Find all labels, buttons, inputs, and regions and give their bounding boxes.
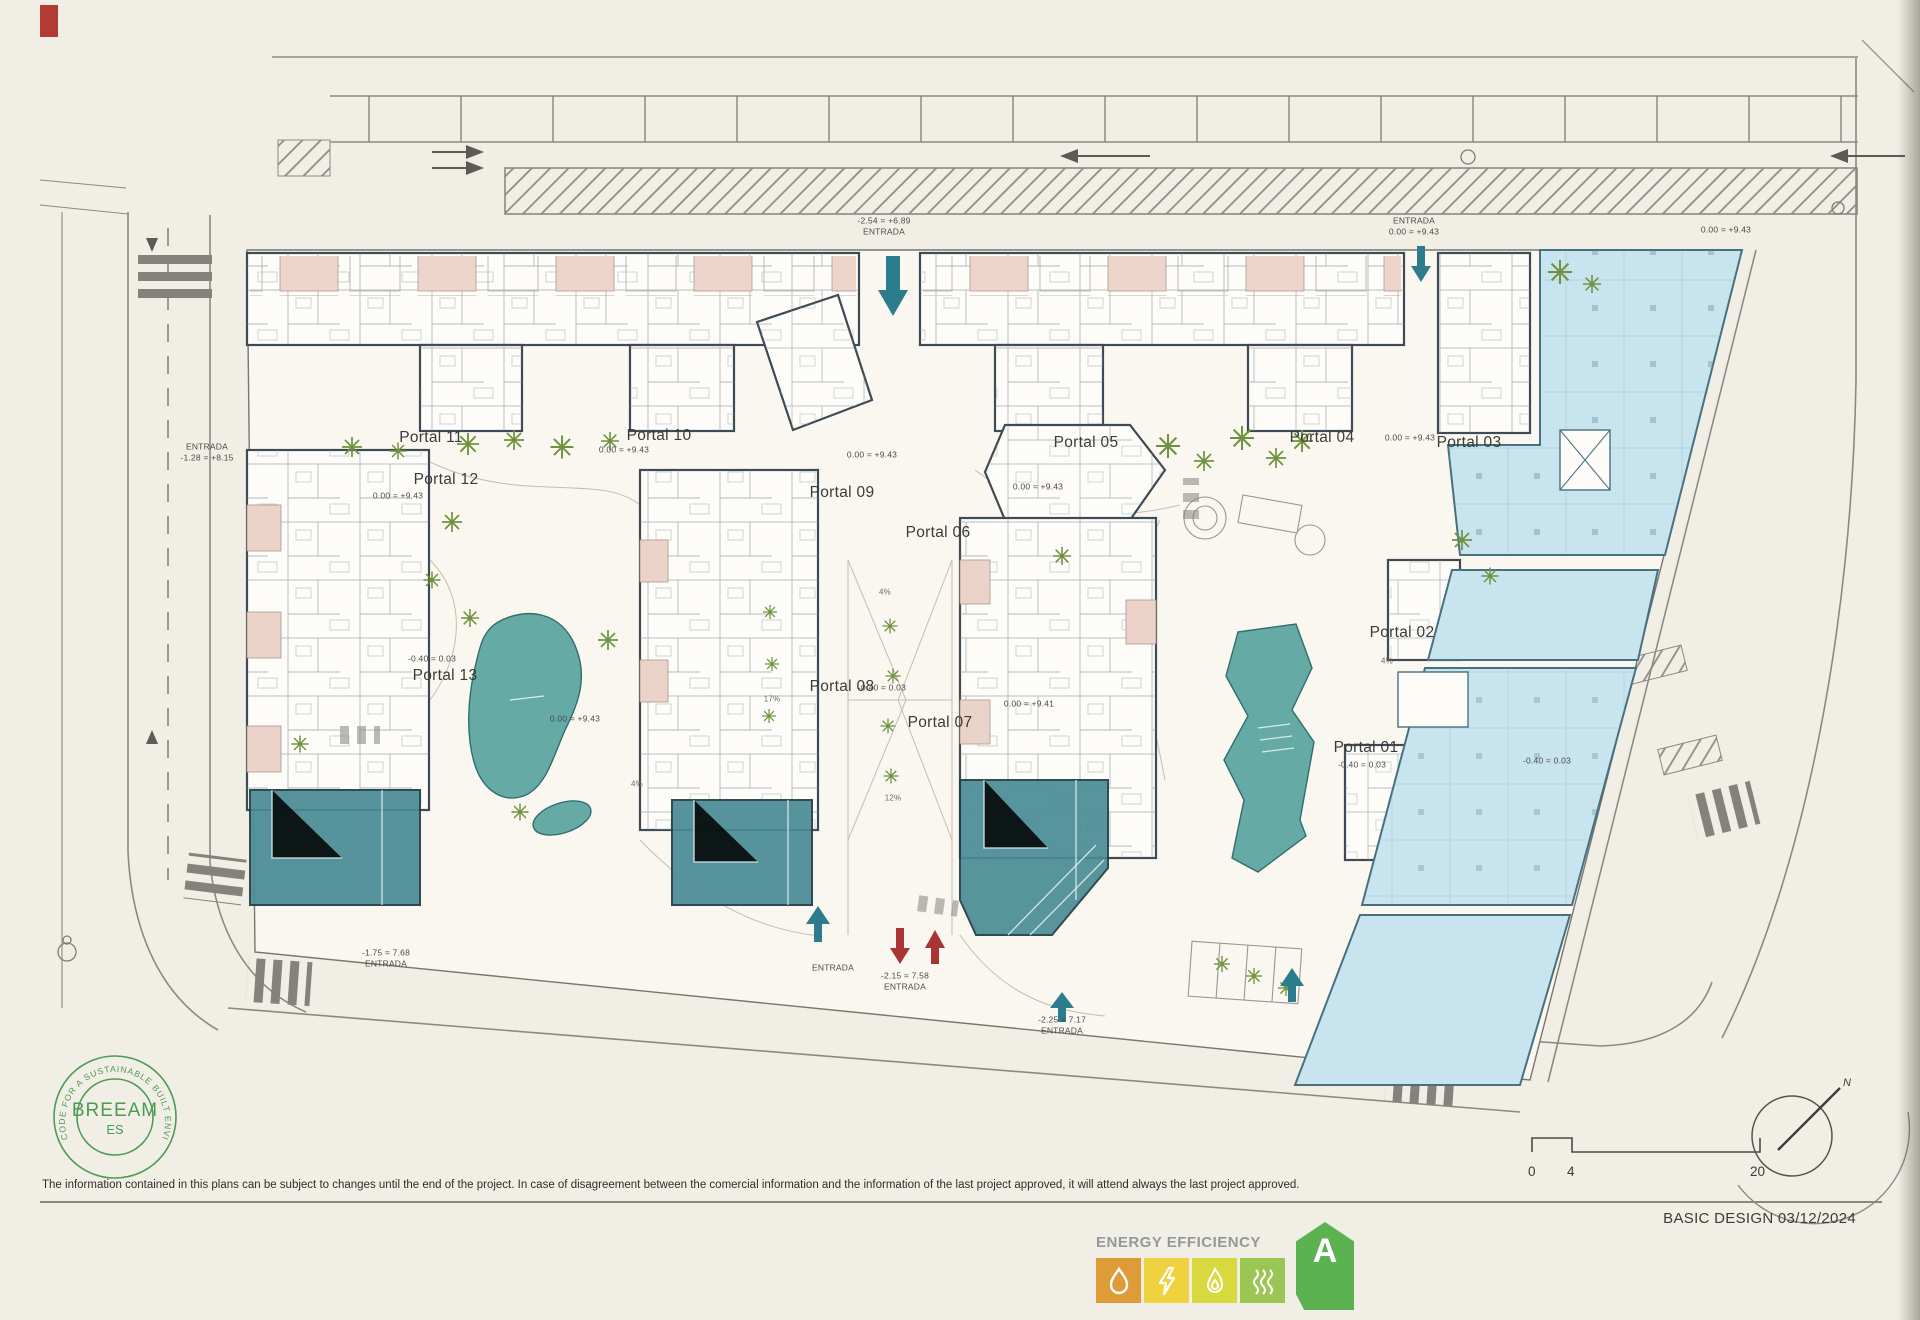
scale-bar [1532,1138,1760,1152]
water-drop-icon [1096,1258,1141,1303]
basic-design-stamp: BASIC DESIGN 03/12/2024 [1663,1210,1856,1227]
breeam-name: BREEAM [72,1100,158,1121]
disclaimer-text: The information contained in this plans … [42,1179,1542,1191]
pool-right [1224,624,1314,872]
energy-rating-letter: A [1313,1232,1338,1310]
north-compass: N [1752,1077,1851,1176]
breeam-region: ES [106,1122,124,1137]
scale-tick-0: 0 [1528,1164,1536,1179]
lightning-icon [1144,1258,1189,1303]
site-plan-drawing: 0 4 20 N [0,0,1920,1320]
energy-efficiency-title: ENERGY EFFICIENCY [1096,1234,1292,1251]
footer-rule [40,1201,1882,1203]
commercial-band-2 [1428,570,1658,660]
scale-tick-20: 20 [1750,1164,1765,1179]
flame-icon [1192,1258,1237,1303]
north-label: N [1843,1077,1851,1089]
corner-mark [40,5,58,37]
heat-waves-icon [1240,1258,1285,1303]
hatched-strip [505,168,1857,214]
breeam-logo: CODE FOR A SUSTAINABLE BUILT ENVIRONMENT… [44,1050,186,1192]
energy-rating-arrow: A [1296,1222,1354,1310]
energy-efficiency-badge: ENERGY EFFICIENCY A [1096,1226,1362,1318]
energy-icon-row [1096,1258,1285,1303]
scale-tick-4: 4 [1567,1164,1575,1179]
